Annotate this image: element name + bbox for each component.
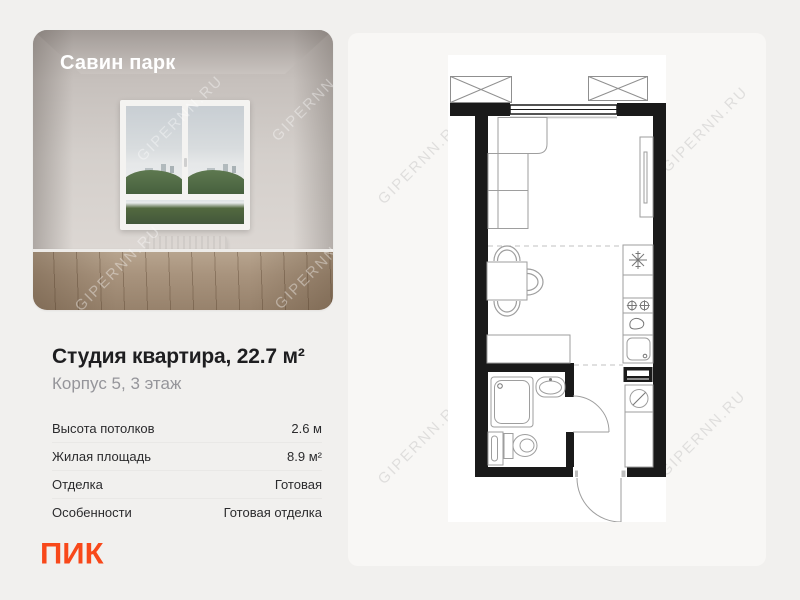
listing-page: Савин парк GIPERNN.RU GIPERNN.RU GIPERNN… [0, 0, 800, 600]
closet [487, 335, 570, 363]
electric-panel [624, 367, 653, 382]
project-name: Савин парк [60, 52, 175, 75]
washing-machine [625, 385, 653, 412]
window-pane-right [188, 106, 244, 194]
window [510, 105, 617, 118]
watermark: GIPERNN.RU [657, 387, 750, 480]
watermark: GIPERNN.RU [659, 83, 752, 176]
tree-line [188, 170, 244, 194]
entrance-door [575, 471, 626, 523]
shower [491, 377, 533, 427]
washbasin [536, 377, 565, 397]
spec-label: Высота потолков [52, 421, 155, 436]
towel-rail [488, 432, 503, 465]
spec-value: Готовая отделка [224, 505, 322, 520]
kitchen-sink [627, 338, 650, 360]
specs-table: Высота потолков 2.6 м Жилая площадь 8.9 … [52, 415, 322, 526]
balcony-vent-right [589, 77, 648, 101]
dining-table [487, 262, 527, 300]
floor-plan [448, 55, 666, 522]
spec-label: Особенности [52, 505, 132, 520]
spec-value: 8.9 м² [287, 449, 322, 464]
apartment-photo[interactable]: Савин парк GIPERNN.RU GIPERNN.RU GIPERNN… [33, 30, 333, 310]
room-right-wall-shade [293, 30, 333, 252]
spec-row-living-area: Жилая площадь 8.9 м² [52, 442, 322, 470]
spec-row-features: Особенности Готовая отделка [52, 498, 322, 526]
page-title: Студия квартира, 22.7 м² [52, 345, 305, 369]
spec-label: Жилая площадь [52, 449, 151, 464]
spec-value: 2.6 м [291, 421, 322, 436]
spec-value: Готовая [275, 477, 322, 492]
balcony-vent-left [451, 77, 512, 103]
sofa [488, 118, 547, 229]
window-pane-bottom [126, 200, 244, 224]
spec-row-ceiling-height: Высота потолков 2.6 м [52, 415, 322, 442]
window-handle [184, 158, 187, 167]
floor-plan-panel[interactable]: GIPERNN.RU GIPERNN.RU GIPERNN.RU GIPERNN… [348, 33, 766, 566]
wardrobe [640, 137, 653, 217]
hall-cabinet [625, 412, 653, 467]
pik-logo[interactable]: ПИК [40, 537, 103, 572]
bathroom-door [573, 396, 609, 432]
spec-row-finishing: Отделка Готовая [52, 470, 322, 498]
listing-subtitle: Корпус 5, 3 этаж [52, 374, 181, 394]
tree-line [126, 170, 182, 194]
spec-label: Отделка [52, 477, 103, 492]
toilet [504, 434, 537, 459]
